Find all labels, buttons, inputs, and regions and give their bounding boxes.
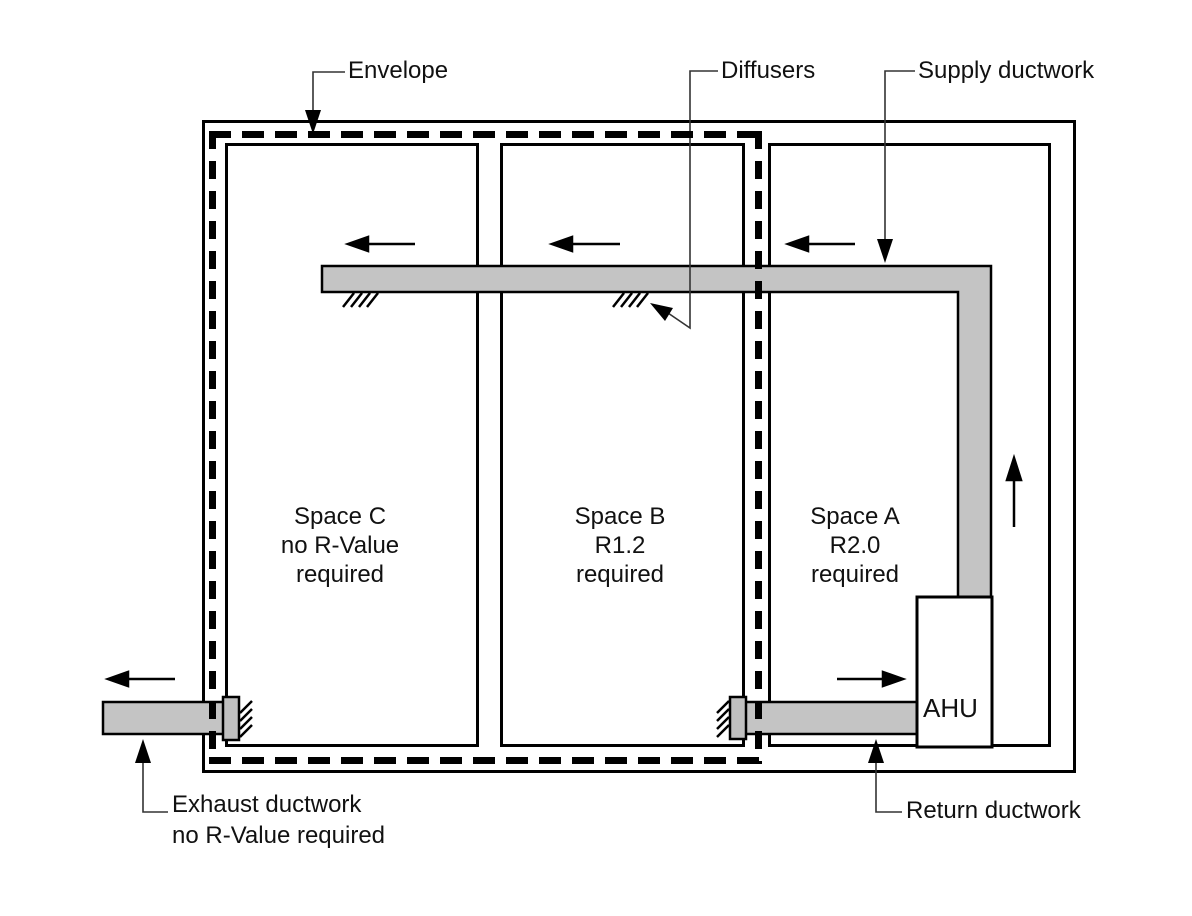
envelope-label: Envelope [348, 57, 448, 86]
envelope-boundary-top [209, 131, 762, 138]
supply-ductwork-label: Supply ductwork [918, 57, 1094, 86]
exhaust-label-line1: Exhaust ductwork [172, 789, 385, 820]
exhaust-grille-hatch [240, 701, 252, 737]
space-a-suffix: required [755, 560, 955, 589]
space-b-name: Space B [520, 502, 720, 531]
space-a-name: Space A [755, 502, 955, 531]
leader-exhaust-label [135, 739, 168, 812]
ahu-label: AHU [923, 693, 978, 724]
exhaust-duct-endcap [223, 697, 239, 740]
diffuser-hatch-space-b [613, 293, 648, 307]
hvac-envelope-diagram: Envelope Diffusers Supply ductwork Space… [0, 0, 1192, 916]
envelope-boundary-bottom [209, 757, 762, 764]
leader-envelope [305, 72, 345, 134]
space-b-suffix: required [520, 560, 720, 589]
space-a-requirement: R2.0 [755, 531, 955, 560]
space-a-label: Space A R2.0 required [755, 502, 955, 589]
airflow-arrow-space-b [552, 237, 620, 251]
airflow-arrow-up-duct [1007, 458, 1021, 527]
exhaust-label-line2: no R-Value required [172, 820, 385, 851]
envelope-boundary-right [755, 131, 762, 764]
exhaust-ductwork-label: Exhaust ductwork no R-Value required [172, 789, 385, 851]
return-grille-hatch [717, 701, 729, 737]
airflow-arrow-exhaust [108, 672, 175, 686]
return-duct-endcap [730, 697, 746, 739]
space-c-name: Space C [240, 502, 440, 531]
envelope-boundary-left [209, 131, 216, 764]
airflow-arrow-space-a [788, 237, 855, 251]
space-b-requirement: R1.2 [520, 531, 720, 560]
space-c-requirement: no R-Value [240, 531, 440, 560]
space-c-label: Space C no R-Value required [240, 502, 440, 589]
diffusers-label: Diffusers [721, 57, 815, 86]
return-ductwork-label: Return ductwork [906, 797, 1081, 826]
leader-return-label [868, 739, 902, 812]
airflow-arrow-return [837, 672, 903, 686]
space-b-label: Space B R1.2 required [520, 502, 720, 589]
diffuser-hatch-space-c [343, 293, 378, 307]
airflow-arrow-space-c [348, 237, 415, 251]
ahu-unit [917, 597, 992, 747]
leader-supply-ductwork [877, 71, 915, 263]
space-c-suffix: required [240, 560, 440, 589]
return-duct [739, 702, 917, 734]
